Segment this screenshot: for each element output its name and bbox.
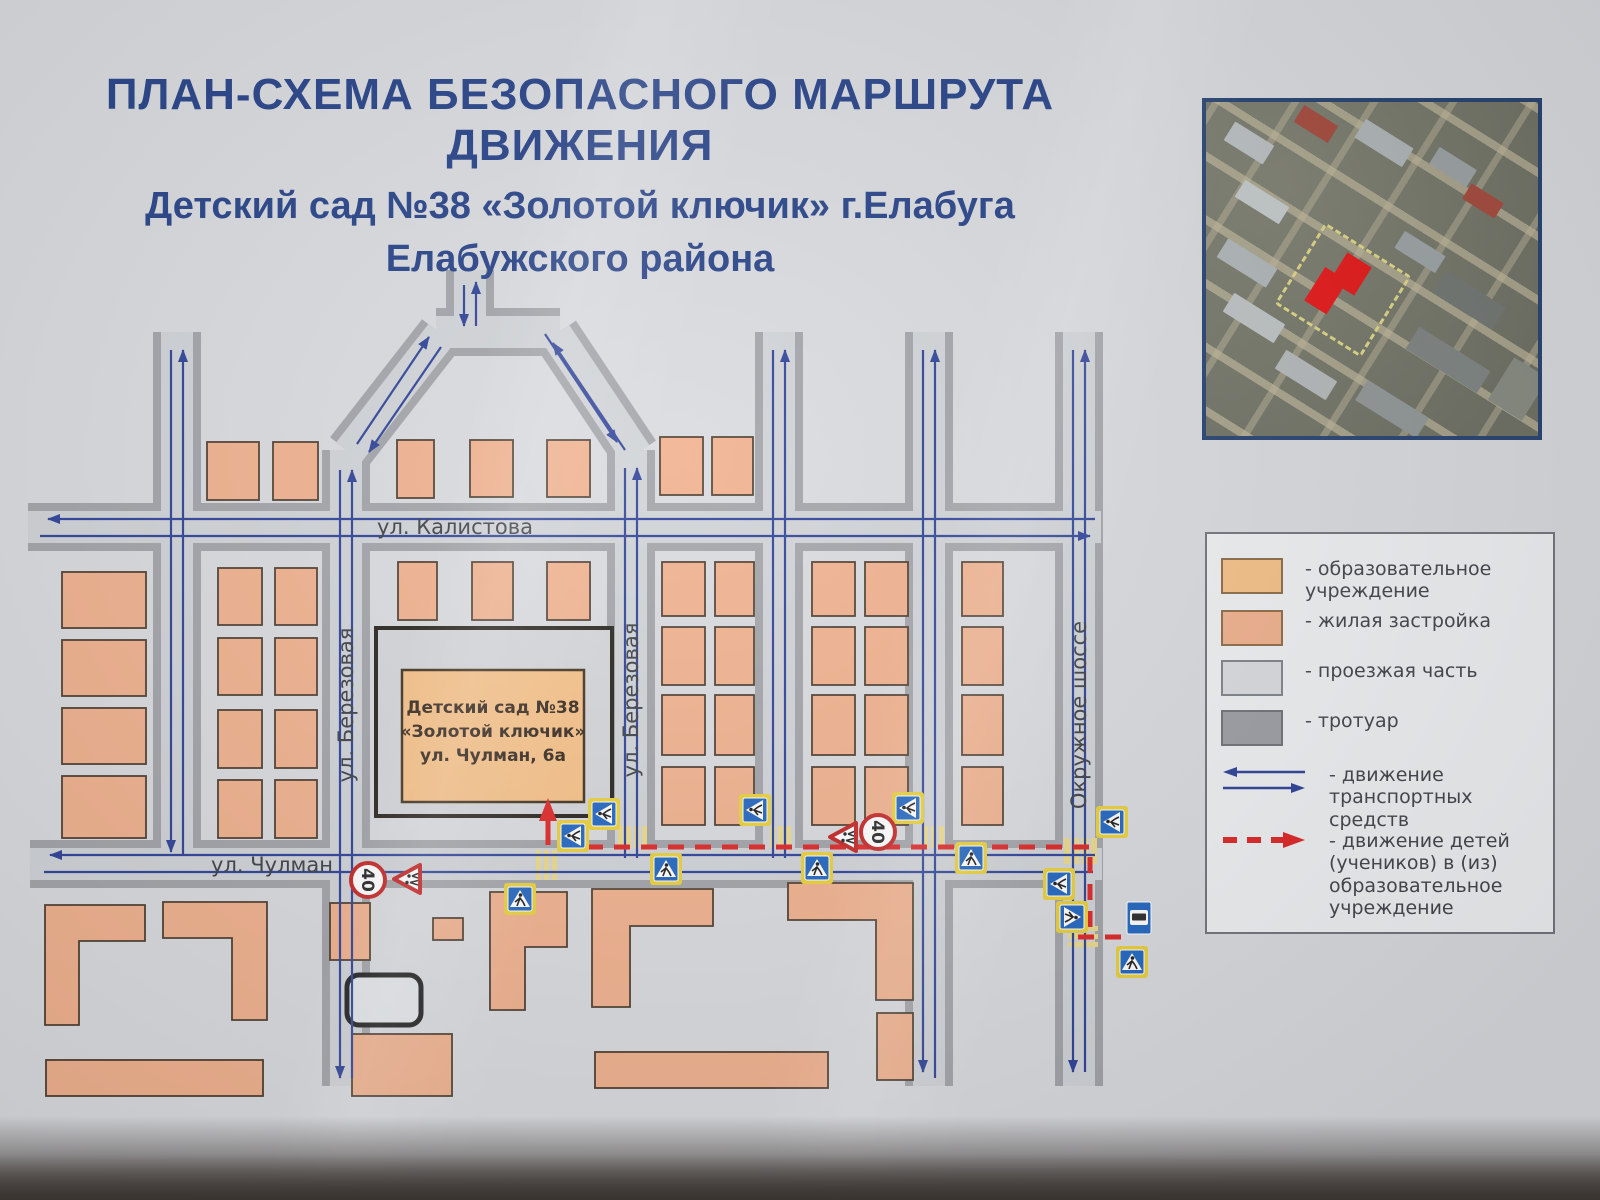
residential-building (218, 638, 262, 695)
parking-area (347, 975, 421, 1025)
residential-building (62, 708, 146, 764)
legend-label: - тротуар (1305, 710, 1535, 732)
pedestrian-crossing-sign-icon (504, 883, 536, 915)
residential-building (275, 710, 317, 768)
legend-label: - движение транспортных средств (1329, 764, 1539, 831)
residential-building (218, 568, 262, 625)
residential-building (275, 638, 317, 695)
residential-building (662, 767, 705, 825)
residential-building (592, 889, 713, 1007)
pedestrian-crossing-sign-icon (1096, 806, 1128, 838)
residential-building (962, 562, 1003, 616)
legend-label: - жилая застройка (1305, 610, 1535, 632)
kindergarten-label-line3: ул. Чулман, 6а (420, 746, 566, 766)
children-route-arrow-icon (1221, 830, 1307, 854)
title-line-3: Елабужского района (0, 238, 1160, 281)
residential-building (273, 442, 318, 500)
residential-building (472, 562, 513, 620)
residential-building (788, 883, 913, 1000)
legend: - образовательное учреждение - жилая зас… (1205, 532, 1555, 934)
legend-row-roadway: - проезжая часть (1221, 660, 1535, 696)
residential-building (275, 780, 317, 838)
pedestrian-crossing-sign-icon (1043, 868, 1075, 900)
residential-building (163, 902, 267, 1020)
legend-label: - проезжая часть (1305, 660, 1535, 682)
residential-building (218, 780, 262, 838)
residential-building (218, 710, 262, 768)
residential-building (865, 562, 908, 616)
residential-building (812, 767, 855, 825)
svg-text:40: 40 (867, 820, 887, 844)
residential-building (712, 437, 753, 495)
street-label-chulman: ул. Чулман (211, 853, 333, 877)
residential-building (812, 627, 855, 685)
residential-building (715, 695, 754, 755)
pedestrian-crossing-sign-icon (892, 792, 924, 824)
residential-building (62, 640, 146, 696)
traffic-arrows-icon (1221, 764, 1307, 802)
residential-building (62, 776, 146, 838)
svg-text:40: 40 (357, 868, 377, 892)
pedestrian-crossing-sign-icon (801, 852, 833, 884)
speed-limit-40-sign: 40 (861, 815, 895, 849)
street-label-kalistova: ул. Калистова (377, 515, 533, 539)
legend-label: - движение детей (учеников) в (из) образ… (1329, 830, 1534, 920)
residential-building (330, 903, 370, 960)
legend-label: - образовательное учреждение (1305, 558, 1535, 603)
title-line-1: ПЛАН-СХЕМА БЕЗОПАСНОГО МАРШРУТА ДВИЖЕНИЯ (0, 70, 1160, 171)
legend-row-children-route: - движение детей (учеников) в (из) образ… (1221, 830, 1534, 920)
residential-building (962, 695, 1003, 755)
residential-building (877, 1013, 913, 1080)
residential-building (962, 627, 1003, 685)
residential-building (715, 562, 754, 616)
residential-building (812, 695, 855, 755)
residential-building (62, 572, 146, 628)
street-label-berezovaya-right: ул. Березовая (619, 623, 643, 778)
residential-building (715, 627, 754, 685)
pedestrian-crossing-sign-icon (1116, 946, 1148, 978)
pedestrian-crossing-sign-icon (588, 798, 620, 830)
residential-building (275, 568, 317, 625)
legend-row-sidewalk: - тротуар (1221, 710, 1535, 746)
residential-building (397, 440, 434, 498)
safety-route-poster: ПЛАН-СХЕМА БЕЗОПАСНОГО МАРШРУТА ДВИЖЕНИЯ… (0, 0, 1600, 1200)
residential-building (207, 442, 259, 500)
residential-building (865, 627, 908, 685)
pedestrian-crossing-sign-icon (650, 853, 682, 885)
residential-building (470, 440, 513, 497)
satellite-photo-inset (1202, 98, 1542, 440)
kindergarten-label-line2: «Золотой ключик» (401, 722, 586, 742)
kindergarten-label-line1: Детский сад №38 (406, 698, 579, 718)
street-label-berezovaya-left: ул. Березовая (334, 628, 358, 783)
pedestrian-crossing-sign-icon (955, 842, 987, 874)
education-swatch-icon (1221, 558, 1283, 594)
legend-row-traffic: - движение транспортных средств (1221, 764, 1539, 831)
sidewalk-swatch-icon (1221, 710, 1283, 746)
poster-title: ПЛАН-СХЕМА БЕЗОПАСНОГО МАРШРУТА ДВИЖЕНИЯ… (0, 70, 1160, 281)
residential-building (962, 767, 1003, 825)
title-line-2: Детский сад №38 «Золотой ключик» г.Елабу… (0, 185, 1160, 228)
bus-stop-sign-icon (1127, 902, 1151, 934)
residential-building (595, 1052, 828, 1088)
pedestrian-crossing-sign-icon (739, 794, 771, 826)
residential-building (662, 627, 705, 685)
residential-building (352, 1034, 452, 1096)
street-label-okruzhnoe-shosse: Окружное шоссе (1067, 621, 1091, 809)
pedestrian-crossing-sign-icon (557, 820, 589, 852)
residential-building (433, 918, 463, 940)
residential-building (865, 695, 908, 755)
roadway-swatch-icon (1221, 660, 1283, 696)
residential-swatch-icon (1221, 610, 1283, 646)
pedestrian-crossing-sign-icon (1056, 901, 1088, 933)
residential-building (662, 562, 705, 616)
residential-building (398, 562, 437, 620)
residential-building (547, 562, 590, 620)
residential-building (812, 562, 855, 616)
residential-building (660, 437, 703, 495)
residential-building (46, 1060, 263, 1096)
residential-building (45, 905, 145, 1025)
legend-row-education: - образовательное учреждение (1221, 558, 1535, 603)
speed-limit-40-sign: 40 (351, 863, 385, 897)
residential-building (547, 440, 590, 497)
residential-building (662, 695, 705, 755)
legend-row-residential: - жилая застройка (1221, 610, 1535, 646)
